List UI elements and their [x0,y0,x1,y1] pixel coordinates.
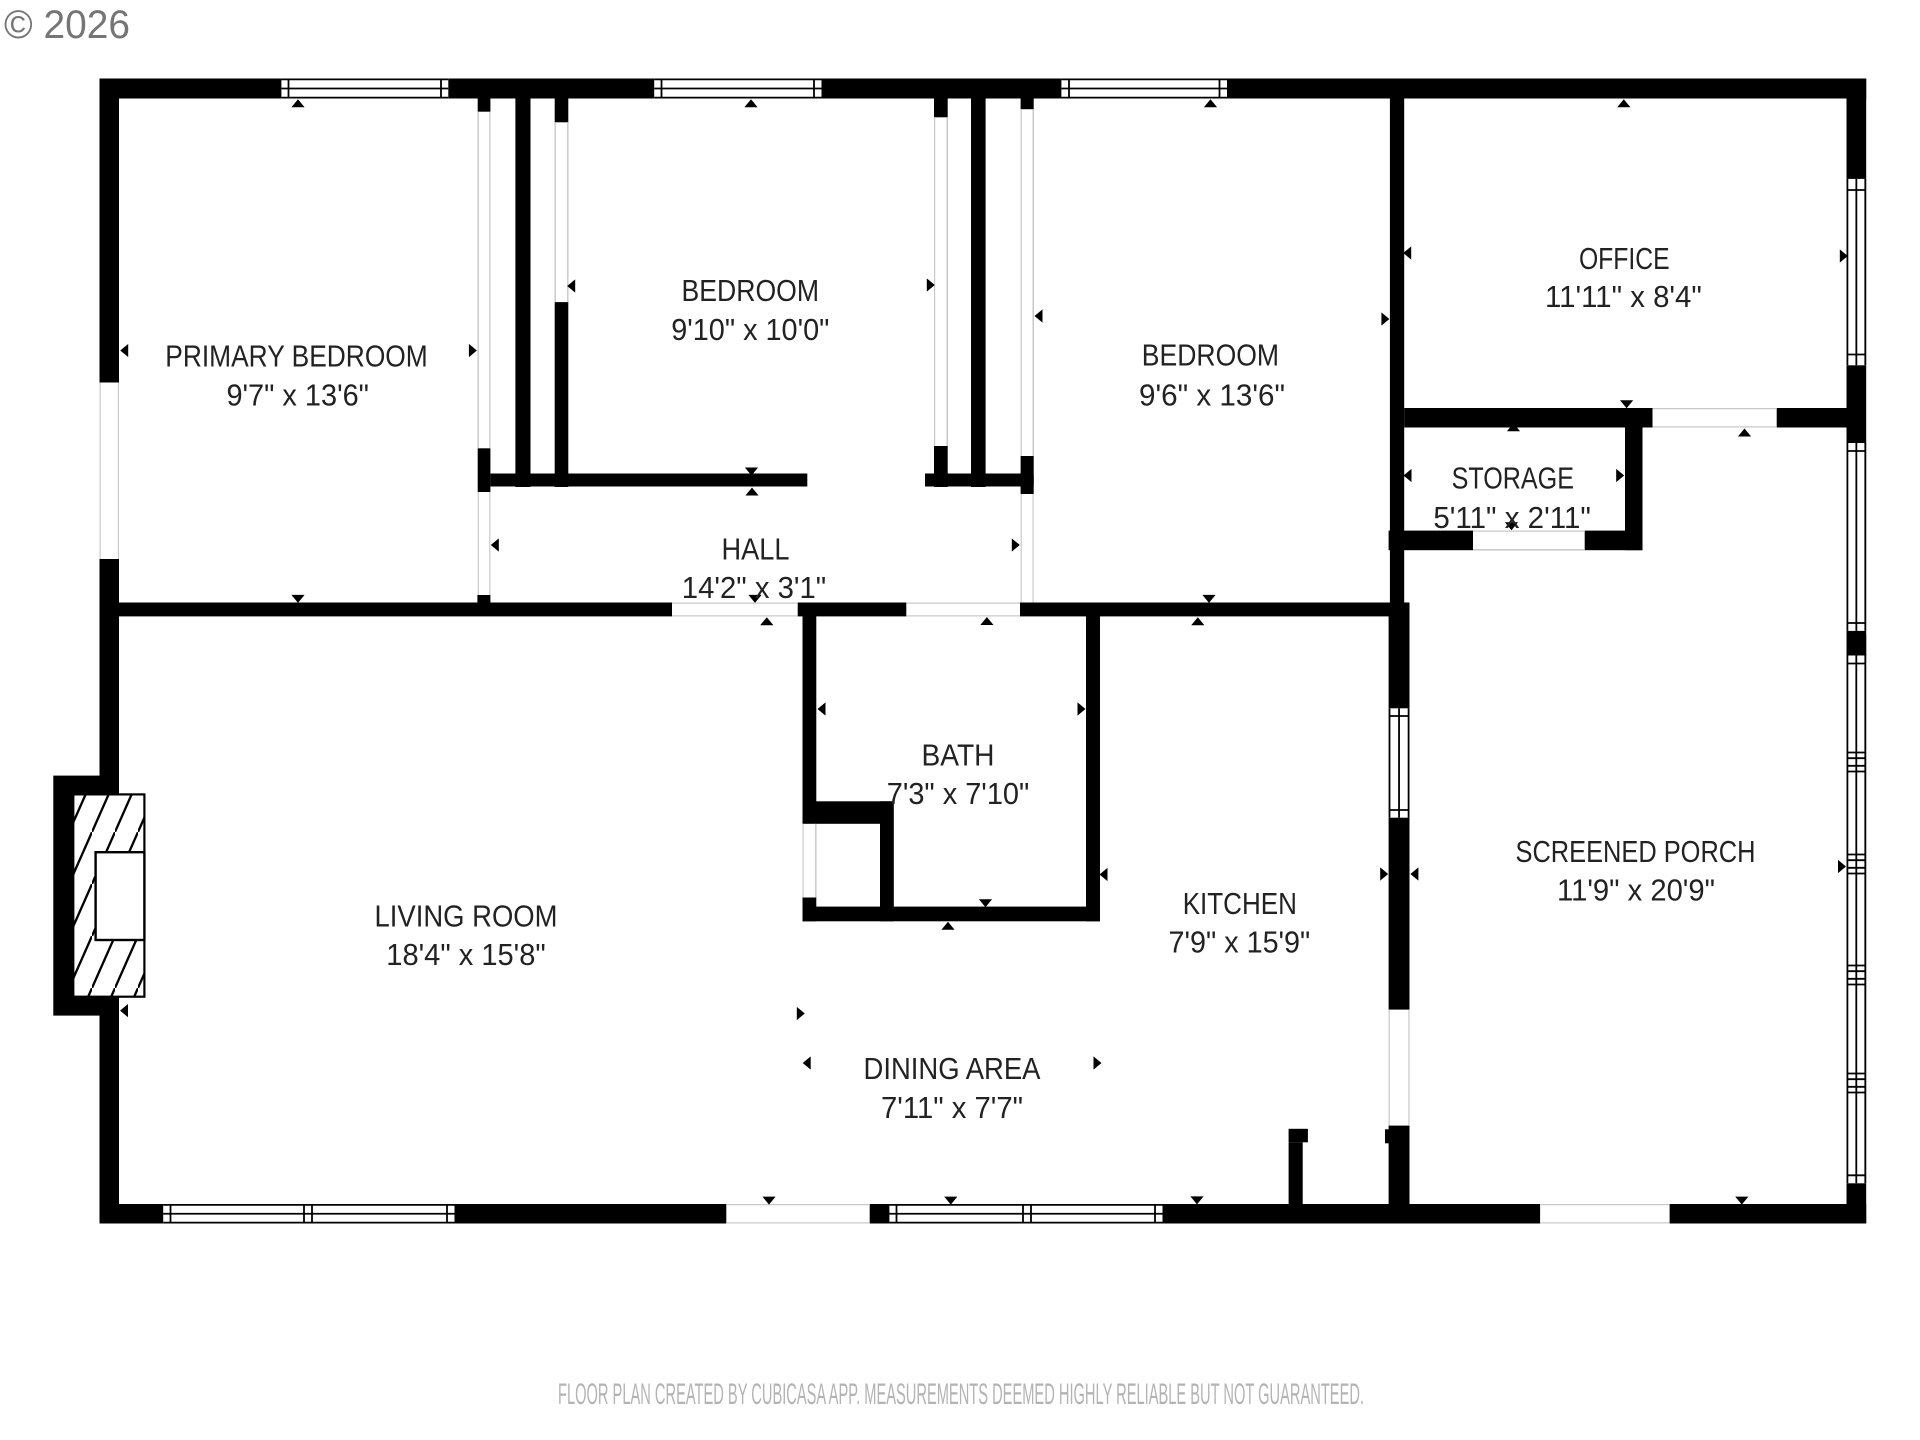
svg-text:7'11" x 7'7": 7'11" x 7'7" [881,1091,1023,1125]
svg-text:5'11" x 2'11": 5'11" x 2'11" [1433,501,1591,535]
svg-text:OFFICE: OFFICE [1579,242,1670,276]
svg-text:KITCHEN: KITCHEN [1183,887,1297,921]
svg-text:11'11" x 8'4": 11'11" x 8'4" [1545,280,1702,314]
svg-text:BATH: BATH [922,739,995,773]
svg-text:DINING AREA: DINING AREA [864,1052,1042,1086]
svg-text:FLOOR PLAN CREATED BY CUBICASA: FLOOR PLAN CREATED BY CUBICASA APP. MEAS… [558,1378,1364,1411]
svg-text:18'4" x 15'8": 18'4" x 15'8" [386,938,545,972]
svg-text:11'9" x 20'9": 11'9" x 20'9" [1557,874,1715,908]
svg-text:7'9" x 15'9": 7'9" x 15'9" [1169,926,1311,960]
svg-text:9'7" x 13'6": 9'7" x 13'6" [226,379,369,413]
svg-text:SCREENED PORCH: SCREENED PORCH [1516,835,1756,869]
svg-text:PRIMARY BEDROOM: PRIMARY BEDROOM [165,340,428,374]
svg-text:9'6" x 13'6": 9'6" x 13'6" [1139,379,1285,413]
svg-text:© 2026: © 2026 [4,3,130,47]
svg-text:HALL: HALL [722,532,790,566]
svg-text:STORAGE: STORAGE [1452,462,1574,496]
svg-text:BEDROOM: BEDROOM [682,274,820,308]
svg-text:BEDROOM: BEDROOM [1142,339,1279,373]
svg-text:14'2" x 3'1": 14'2" x 3'1" [682,571,826,605]
svg-text:LIVING ROOM: LIVING ROOM [375,899,558,933]
svg-text:7'3" x 7'10": 7'3" x 7'10" [887,777,1030,811]
svg-text:9'10" x 10'0": 9'10" x 10'0" [671,313,829,347]
